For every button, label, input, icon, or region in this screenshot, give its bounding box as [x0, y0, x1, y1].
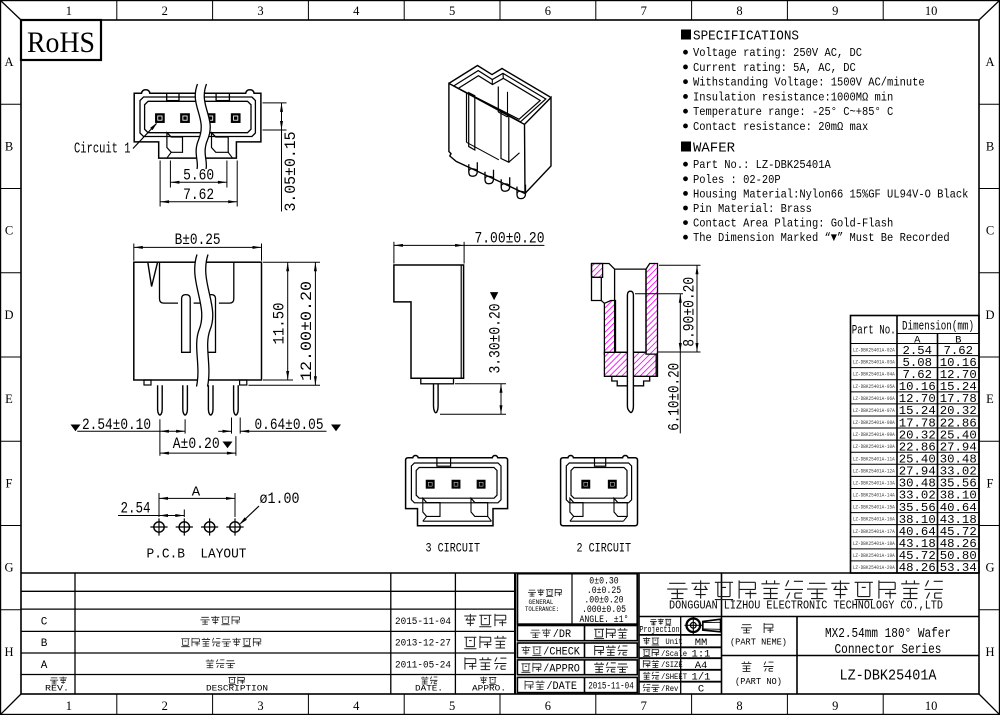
svg-text:8.90±0.20: 8.90±0.20	[681, 277, 699, 347]
svg-text:C: C	[41, 616, 48, 628]
svg-text:G: G	[985, 561, 994, 575]
svg-text:LZ-DBK25401A: LZ-DBK25401A	[840, 668, 937, 684]
svg-text:F: F	[987, 476, 994, 490]
svg-text:E: E	[5, 392, 13, 406]
svg-text:Dimension(mm): Dimension(mm)	[902, 320, 974, 334]
svg-text:3.30±0.20: 3.30±0.20	[487, 304, 505, 374]
svg-text:3: 3	[257, 4, 263, 18]
svg-text:Unit: Unit	[661, 637, 683, 647]
svg-text:Circuit 1: Circuit 1	[74, 141, 131, 158]
svg-text:/CHECK: /CHECK	[543, 646, 580, 658]
svg-text:Part No.: Part No.	[852, 323, 896, 337]
svg-text:6.10±0.20: 6.10±0.20	[666, 363, 684, 431]
svg-text:F: F	[6, 476, 13, 490]
svg-text:MX2.54mm 180° Wafer: MX2.54mm 180° Wafer	[825, 627, 951, 642]
svg-text:5.60: 5.60	[183, 167, 214, 185]
svg-text:LZ-DBK25401A-03A: LZ-DBK25401A-03A	[853, 359, 895, 366]
svg-text:Voltage rating: 250V AC, DC: Voltage rating: 250V AC, DC	[693, 46, 862, 60]
svg-text:LZ-DBK25401A-19A: LZ-DBK25401A-19A	[853, 552, 895, 559]
svg-text:LZ-DBK25401A-18A: LZ-DBK25401A-18A	[853, 540, 895, 547]
svg-text:H: H	[985, 645, 994, 659]
svg-text:LZ-DBK25401A-13A: LZ-DBK25401A-13A	[853, 479, 895, 486]
svg-text:LZ-DBK25401A-06A: LZ-DBK25401A-06A	[853, 395, 895, 402]
svg-text:G: G	[4, 561, 13, 575]
svg-text:7: 7	[641, 699, 647, 713]
svg-text:Contact Area Plating: Gold-Fla: Contact Area Plating: Gold-Flash	[693, 217, 893, 231]
svg-text:2: 2	[162, 4, 168, 18]
svg-text:8: 8	[736, 699, 742, 713]
svg-text:5: 5	[449, 699, 455, 713]
svg-text:LZ-DBK25401A-15A: LZ-DBK25401A-15A	[853, 504, 895, 511]
svg-text:E: E	[986, 392, 994, 406]
svg-text:LZ-DBK25401A-02A: LZ-DBK25401A-02A	[853, 347, 895, 354]
svg-text:C: C	[5, 224, 13, 238]
svg-text:2 CIRCUIT: 2 CIRCUIT	[577, 541, 632, 556]
svg-text:7.62: 7.62	[183, 186, 214, 204]
svg-text:B: B	[41, 638, 48, 650]
svg-text:Insulation resistance:1000MΩ m: Insulation resistance:1000MΩ min	[693, 90, 893, 104]
svg-text:RoHS: RoHS	[27, 26, 95, 59]
svg-text:REV.: REV.	[45, 684, 69, 694]
svg-text:8: 8	[736, 4, 742, 18]
svg-text:LZ-DBK25401A-20A: LZ-DBK25401A-20A	[853, 564, 895, 571]
svg-text:APPRO.: APPRO.	[472, 684, 506, 694]
svg-text:7.00±0.20: 7.00±0.20	[475, 229, 545, 247]
svg-text:Poles : 02-20P: Poles : 02-20P	[693, 173, 781, 187]
svg-text:DONGGUAN LIZHOU ELECTRONIC TEC: DONGGUAN LIZHOU ELECTRONIC TECHNOLOGY CO…	[669, 599, 943, 612]
svg-text:2.54: 2.54	[121, 500, 151, 518]
svg-text:B±0.25: B±0.25	[175, 231, 221, 249]
svg-text:D: D	[985, 308, 994, 322]
svg-text:10: 10	[925, 4, 938, 18]
svg-text:Part No.: LZ-DBK25401A: Part No.: LZ-DBK25401A	[693, 158, 831, 172]
svg-text:Current rating: 5A, AC, DC: Current rating: 5A, AC, DC	[693, 61, 856, 75]
svg-text:H: H	[4, 645, 13, 659]
svg-text:/APPRO: /APPRO	[543, 663, 580, 675]
svg-text:2011-05-24: 2011-05-24	[395, 660, 451, 671]
svg-text:1: 1	[66, 699, 72, 713]
svg-text:LZ-DBK25401A-17A: LZ-DBK25401A-17A	[853, 528, 895, 535]
svg-text:C: C	[986, 224, 994, 238]
svg-text:0.64±0.05: 0.64±0.05	[255, 416, 324, 434]
svg-text:7: 7	[641, 4, 647, 18]
svg-text:/Scale: /Scale	[661, 649, 687, 659]
svg-text:GENERAL: GENERAL	[529, 599, 554, 606]
svg-text:DATE.: DATE.	[415, 684, 443, 694]
svg-text:Withstanding Voltage: 1500V AC: Withstanding Voltage: 1500V AC/minute	[693, 76, 925, 90]
svg-text:/DATE: /DATE	[546, 681, 577, 693]
svg-text:2013-12-27: 2013-12-27	[395, 639, 451, 650]
svg-text:D: D	[4, 308, 13, 322]
svg-text:5: 5	[449, 4, 455, 18]
svg-text:TOLERANCE:: TOLERANCE:	[525, 606, 559, 613]
svg-text:3 CIRCUIT: 3 CIRCUIT	[426, 541, 481, 556]
svg-text:/DR: /DR	[553, 629, 572, 641]
svg-text:LZ-DBK25401A-10A: LZ-DBK25401A-10A	[853, 443, 895, 450]
svg-text:A: A	[41, 660, 48, 672]
svg-text:4: 4	[353, 4, 360, 18]
svg-text:3: 3	[257, 699, 263, 713]
svg-text:LZ-DBK25401A-04A: LZ-DBK25401A-04A	[853, 371, 895, 378]
svg-text:LZ-DBK25401A-05A: LZ-DBK25401A-05A	[853, 383, 895, 390]
svg-text:Projection: Projection	[640, 625, 680, 635]
svg-text:SPECIFICATIONS: SPECIFICATIONS	[693, 30, 799, 45]
svg-text:LZ-DBK25401A-16A: LZ-DBK25401A-16A	[853, 516, 895, 523]
svg-text:Connector Series: Connector Series	[835, 643, 942, 658]
svg-text:The Dimension Marked “▼” Must: The Dimension Marked “▼” Must Be Recorde…	[693, 231, 950, 245]
svg-text:Housing Material:Nylon66 15%GF: Housing Material:Nylon66 15%GF UL94V-O B…	[693, 187, 968, 201]
svg-text:1: 1	[66, 4, 72, 18]
svg-text:/SIZE: /SIZE	[661, 660, 683, 670]
svg-text:B: B	[5, 139, 13, 153]
svg-text:Temperature range: -25° C~+85°: Temperature range: -25° C~+85° C	[693, 105, 893, 119]
svg-text:(PART NEME): (PART NEME)	[730, 636, 787, 647]
svg-text:A±0.20: A±0.20	[173, 435, 220, 453]
svg-text:LZ-DBK25401A-12A: LZ-DBK25401A-12A	[853, 467, 895, 474]
svg-text:LZ-DBK25401A-09A: LZ-DBK25401A-09A	[853, 431, 895, 438]
svg-text:3.05±0.15: 3.05±0.15	[282, 132, 300, 212]
svg-text:10: 10	[925, 699, 938, 713]
svg-text:1:1: 1:1	[692, 649, 711, 661]
svg-text:ø1.00: ø1.00	[260, 490, 300, 508]
svg-text:C: C	[698, 684, 704, 696]
svg-text:1/1: 1/1	[692, 672, 711, 684]
svg-text:4: 4	[353, 699, 360, 713]
svg-text:LZ-DBK25401A-14A: LZ-DBK25401A-14A	[853, 492, 895, 499]
svg-text:12.00±0.20: 12.00±0.20	[298, 281, 316, 381]
svg-text:9: 9	[832, 699, 838, 713]
svg-text:2015-11-04: 2015-11-04	[395, 617, 451, 628]
svg-text:P.C.B LAYOUT: P.C.B LAYOUT	[147, 547, 247, 563]
svg-text:/SHEET: /SHEET	[661, 672, 687, 682]
svg-text:ANGLE. ±1°: ANGLE. ±1°	[580, 614, 629, 626]
svg-text:Pin Material: Brass: Pin Material: Brass	[693, 202, 812, 216]
svg-text:LZ-DBK25401A-11A: LZ-DBK25401A-11A	[853, 455, 895, 462]
svg-text:LZ-DBK25401A-07A: LZ-DBK25401A-07A	[853, 407, 895, 414]
svg-text:WAFER: WAFER	[693, 142, 735, 157]
svg-text:LZ-DBK25401A-08A: LZ-DBK25401A-08A	[853, 419, 895, 426]
svg-text:6: 6	[545, 4, 551, 18]
svg-text:2015-11-04: 2015-11-04	[588, 682, 634, 693]
svg-text:(PART NO): (PART NO)	[735, 676, 782, 687]
svg-text:Contact resistance: 20mΩ max: Contact resistance: 20mΩ max	[693, 120, 868, 134]
svg-text:2: 2	[162, 699, 168, 713]
svg-text:MM: MM	[695, 637, 708, 649]
svg-text:A: A	[4, 55, 13, 69]
svg-text:11.50: 11.50	[271, 303, 289, 345]
svg-text:A: A	[192, 485, 201, 501]
svg-text:B: B	[986, 139, 994, 153]
svg-text:A: A	[985, 55, 994, 69]
svg-text:9: 9	[832, 4, 838, 18]
svg-text:DESCRIPTION: DESCRIPTION	[206, 684, 268, 694]
svg-text:6: 6	[545, 699, 551, 713]
svg-text:A4: A4	[695, 660, 708, 672]
svg-text:/Rev: /Rev	[661, 684, 678, 694]
